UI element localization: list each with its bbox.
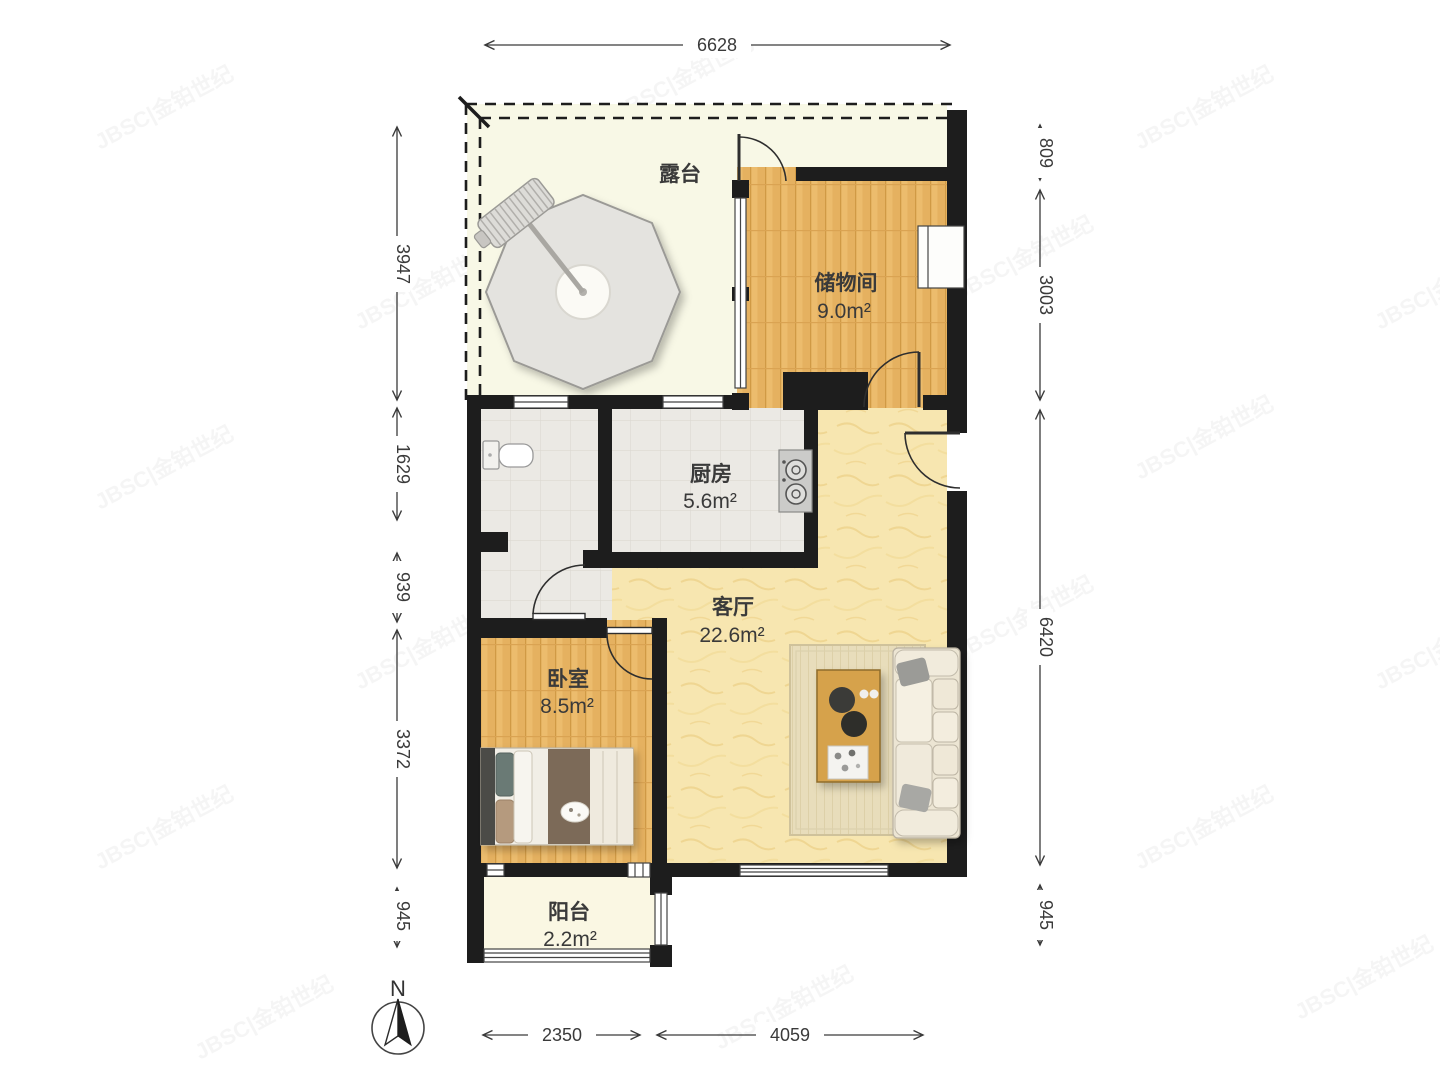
storage-terrace-window <box>735 198 746 388</box>
table-cup <box>841 711 867 737</box>
storage-label: 储物间 <box>815 271 878 295</box>
dim-top: 6628 <box>697 35 737 55</box>
sofa <box>893 648 960 838</box>
dim-bottom: 2350 <box>542 1025 582 1045</box>
balcony-door-frame <box>628 863 650 877</box>
bed-pillow <box>496 800 514 843</box>
watermark: JBSC|金铂世纪 <box>1131 781 1278 875</box>
kitchen-label: 厨房 <box>690 462 732 486</box>
watermark: JBSC|金铂世纪 <box>1131 391 1278 485</box>
toilet <box>483 441 533 469</box>
wall-balcony-left <box>467 877 484 963</box>
bed-decor-plate <box>561 802 589 822</box>
dim-left: 3372 <box>393 729 413 769</box>
wall-left-stub <box>481 532 508 552</box>
storage-right-window <box>918 226 964 288</box>
bathroom-floor <box>467 405 612 630</box>
living-label: 客厅 <box>712 595 754 619</box>
watermark: JBSC|金铂世纪 <box>1371 241 1440 335</box>
wall-kitchen-left <box>598 409 612 553</box>
bed-blanket <box>548 749 590 844</box>
bed <box>481 748 633 845</box>
wall-storage-top <box>796 167 947 181</box>
north-compass: N <box>372 976 424 1054</box>
terrace-label: 露台 <box>659 162 701 186</box>
entry-door-gap <box>947 433 967 491</box>
table-cup <box>829 687 855 713</box>
watermark: JBSC|金铂世纪 <box>91 421 238 515</box>
balcony-area: 2.2m² <box>543 928 597 951</box>
coffee-table <box>817 670 880 782</box>
dim-left: 3947 <box>393 244 413 284</box>
balcony-label: 阳台 <box>548 900 590 924</box>
bedroom-small-window <box>487 864 504 876</box>
watermark: JBSC|金铂世纪 <box>951 571 1098 665</box>
stove <box>779 450 812 512</box>
living-area: 22.6m² <box>699 624 764 647</box>
bathroom-window <box>514 396 568 408</box>
dim-right: 3003 <box>1036 275 1056 315</box>
storage-area: 9.0m² <box>817 300 871 323</box>
wall-storage-bottom <box>923 395 949 410</box>
dim-left: 945 <box>393 901 413 931</box>
watermark: JBSC|金铂世纪 <box>91 61 238 155</box>
bed-headboard <box>481 748 495 845</box>
dim-right: 6420 <box>1036 617 1056 657</box>
kitchen-window <box>663 396 723 408</box>
watermark: JBSC|金铂世纪 <box>191 971 338 1065</box>
wall-window-post <box>732 180 749 198</box>
watermark: JBSC|金铂世纪 <box>1371 601 1440 695</box>
bedroom-area: 8.5m² <box>540 695 594 718</box>
wall-balcony-post <box>650 877 672 895</box>
dim-right: 945 <box>1036 900 1056 930</box>
living-bottom-window <box>740 865 888 876</box>
dim-right: 809 <box>1036 138 1056 168</box>
watermark: JBSC|金铂世纪 <box>1291 931 1438 1025</box>
bedroom-label: 卧室 <box>547 667 589 691</box>
wall-bedroom-top <box>467 618 607 638</box>
north-label: N <box>390 976 406 1001</box>
watermark: JBSC|金铂世纪 <box>91 781 238 875</box>
balcony-right-window <box>655 893 667 945</box>
dim-left: 1629 <box>393 444 413 484</box>
dim-bottom: 4059 <box>770 1025 810 1045</box>
table-tray <box>828 746 868 779</box>
wall-balcony-corner <box>650 945 672 967</box>
dim-left: 939 <box>393 572 413 602</box>
kitchen-area: 5.6m² <box>683 490 737 513</box>
watermark: JBSC|金铂世纪 <box>1131 61 1278 155</box>
wall-flue-column <box>783 372 868 410</box>
floorplan-page: JBSC|金铂世纪 JBSC|金铂世纪 JBSC|金铂世纪 JBSC|金铂世纪 … <box>0 0 1440 1080</box>
floorplan-svg: JBSC|金铂世纪 JBSC|金铂世纪 JBSC|金铂世纪 JBSC|金铂世纪 … <box>0 0 1440 1080</box>
bed-pillow <box>496 753 514 796</box>
watermark: JBSC|金铂世纪 <box>951 211 1098 305</box>
wall-kitchen-bottom <box>598 552 818 568</box>
wall-bedroom-right <box>652 618 667 868</box>
wall-window-post <box>732 393 749 410</box>
